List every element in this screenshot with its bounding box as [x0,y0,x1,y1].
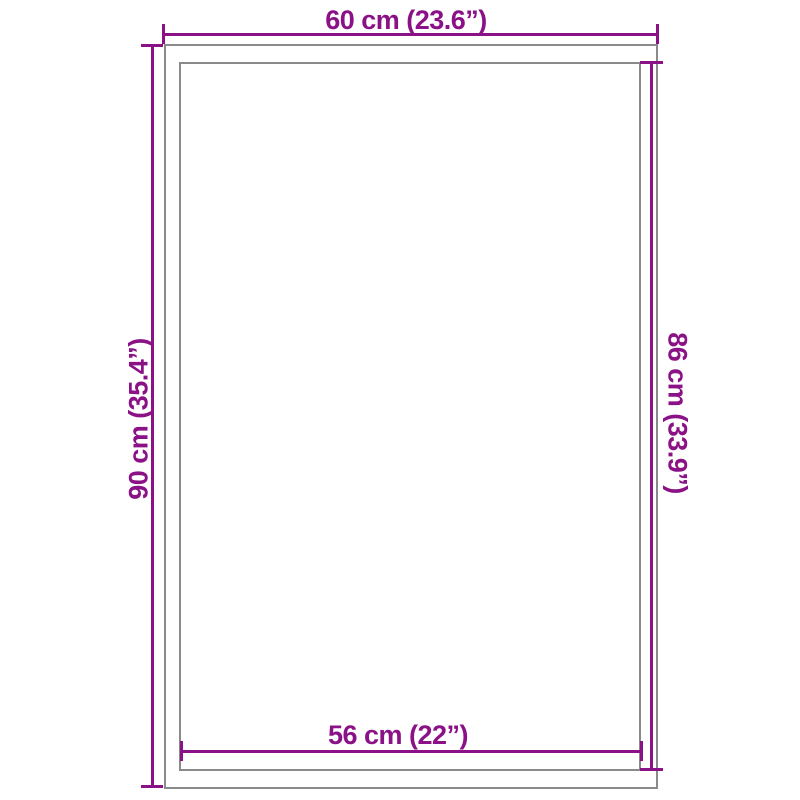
bottom-dimension-line [181,750,643,753]
right-dimension-tick-top [640,61,663,64]
left-dimension-tick-bottom [141,785,163,788]
dimension-diagram: 60 cm (23.6”) 90 cm (35.4”) 86 cm (33.9”… [0,0,800,800]
top-dimension-tick-left [162,24,165,44]
bottom-dimension-tick-left [180,741,183,761]
right-dimension-label: 86 cm (33.9”) [664,332,691,494]
right-dimension-tick-bottom [640,768,663,771]
top-dimension-tick-right [656,24,659,44]
left-dimension-label: 90 cm (35.4”) [126,338,153,500]
left-dimension-tick-top [141,44,163,47]
top-dimension-label: 60 cm (23.6”) [325,7,487,34]
bottom-dimension-label: 56 cm (22”) [328,722,468,749]
right-dimension-line [650,62,653,771]
inner-rectangle-outline [179,62,641,771]
bottom-dimension-tick-right [640,741,643,761]
